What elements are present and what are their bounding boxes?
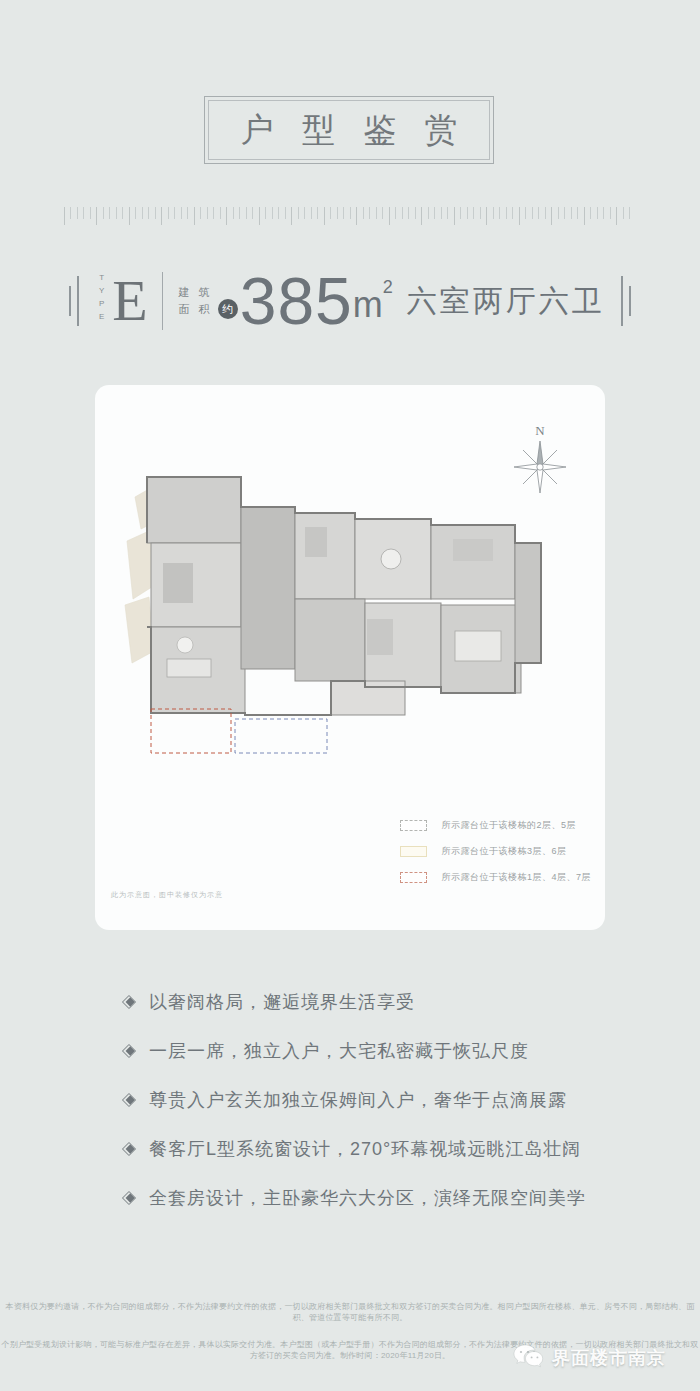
watermark-text: 界面楼市南京 bbox=[552, 1346, 666, 1370]
watermark: 界面楼市南京 bbox=[513, 1344, 666, 1371]
feature-text: 餐客厅L型系统窗设计，270°环幕视域远眺江岛壮阔 bbox=[149, 1137, 581, 1161]
area-label: 建 筑 面 积 bbox=[179, 284, 213, 318]
unit-spec-row: TYPE E 建 筑 面 积 约 385 m2 六室两厅六卫 bbox=[0, 258, 700, 344]
feature-item: 全套房设计，主卧豪华六大分区，演绎无限空间美学 bbox=[122, 1186, 586, 1210]
legend-swatch-dashed-grey bbox=[400, 820, 427, 831]
ruler-divider bbox=[64, 207, 636, 227]
decorative-bars-left bbox=[69, 276, 79, 326]
type-value: E bbox=[112, 272, 147, 330]
feature-text: 一层一席，独立入户，大宅私密藏于恢弘尺度 bbox=[149, 1039, 529, 1063]
compass-north-label: N bbox=[509, 423, 571, 439]
approx-badge: 约 bbox=[218, 299, 238, 319]
legend-label: 所示露台位于该楼栋的2层、5层 bbox=[441, 819, 576, 832]
ruler-tall-ticks bbox=[64, 207, 636, 225]
legend-swatch-dashed-red bbox=[400, 872, 427, 883]
area-exponent: 2 bbox=[383, 277, 393, 297]
feature-item: 一层一席，独立入户，大宅私密藏于恢弘尺度 bbox=[122, 1039, 586, 1063]
feature-item: 以奢阔格局，邂逅境界生活享受 bbox=[122, 990, 586, 1014]
diamond-bullet-icon bbox=[122, 995, 136, 1009]
terrace-legend: 所示露台位于该楼栋的2层、5层 所示露台位于该楼栋3层、6层 所示露台位于该楼栋… bbox=[400, 819, 591, 884]
diamond-bullet-icon bbox=[122, 1044, 136, 1058]
feature-text: 以奢阔格局，邂逅境界生活享受 bbox=[149, 990, 415, 1014]
area-unit: m bbox=[353, 284, 383, 325]
diamond-bullet-icon bbox=[122, 1093, 136, 1107]
area-label-line2: 面 积 bbox=[179, 301, 213, 318]
wechat-icon bbox=[513, 1344, 545, 1371]
floorplan-card: N bbox=[95, 385, 605, 930]
legend-label: 所示露台位于该楼栋1层、4层、7层 bbox=[441, 871, 591, 884]
diamond-bullet-icon bbox=[122, 1191, 136, 1205]
room-layout-text: 六室两厅六卫 bbox=[407, 281, 605, 322]
area-value: 385 bbox=[240, 268, 353, 334]
feature-text: 全套房设计，主卧豪华六大分区，演绎无限空间美学 bbox=[149, 1186, 586, 1210]
feature-item: 尊贵入户玄关加独立保姆间入户，奢华于点滴展露 bbox=[122, 1088, 586, 1112]
disclaimer-line-1: 本资料仅为要约邀请，不作为合同的组成部分，不作为法律要约文件的依据，一切以政府相… bbox=[0, 1301, 700, 1323]
area-label-line1: 建 筑 bbox=[179, 284, 213, 301]
decorative-bars-right bbox=[621, 276, 631, 326]
title-box: 户 型 鉴 赏 bbox=[204, 96, 494, 164]
legend-row: 所示露台位于该楼栋的2层、5层 bbox=[400, 819, 591, 832]
poster-page: 户 型 鉴 赏 TYPE E 建 筑 面 积 约 385 m2 六室两厅六卫 N bbox=[0, 0, 700, 1391]
feature-text: 尊贵入户玄关加独立保姆间入户，奢华于点滴展露 bbox=[149, 1088, 567, 1112]
type-label: TYPE bbox=[97, 273, 106, 329]
legend-row: 所示露台位于该楼栋1层、4层、7层 bbox=[400, 871, 591, 884]
plan-disclaimer-note: 此为示意图，图中装修仅为示意 bbox=[111, 890, 223, 900]
feature-list: 以奢阔格局，邂逅境界生活享受 一层一席，独立入户，大宅私密藏于恢弘尺度 尊贵入户… bbox=[122, 990, 586, 1210]
area-unit-group: m2 bbox=[353, 277, 393, 326]
feature-item: 餐客厅L型系统窗设计，270°环幕视域远眺江岛壮阔 bbox=[122, 1137, 586, 1161]
title-box-inner-border: 户 型 鉴 赏 bbox=[208, 100, 490, 160]
floor-plan-image bbox=[123, 463, 563, 783]
legend-row: 所示露台位于该楼栋3层、6层 bbox=[400, 845, 591, 858]
legend-label: 所示露台位于该楼栋3层、6层 bbox=[441, 845, 566, 858]
diamond-bullet-icon bbox=[122, 1142, 136, 1156]
page-title: 户 型 鉴 赏 bbox=[231, 108, 468, 153]
legend-swatch-solid-yellow bbox=[400, 846, 427, 857]
spec-divider-line bbox=[162, 272, 163, 330]
